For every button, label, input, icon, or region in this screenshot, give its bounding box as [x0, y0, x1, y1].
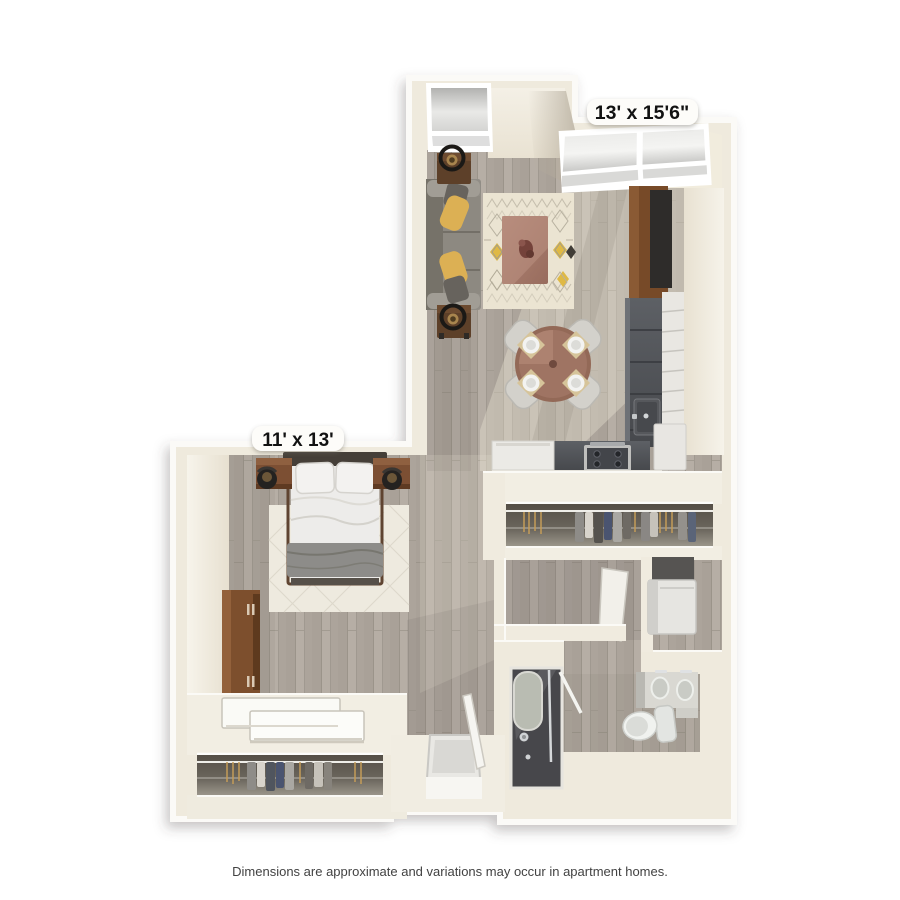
svg-text:13' x 15'6": 13' x 15'6" [595, 102, 689, 124]
svg-text:11' x 13': 11' x 13' [262, 430, 333, 451]
svg-text:Dimensions are approximate and: Dimensions are approximate and variation… [232, 864, 668, 879]
